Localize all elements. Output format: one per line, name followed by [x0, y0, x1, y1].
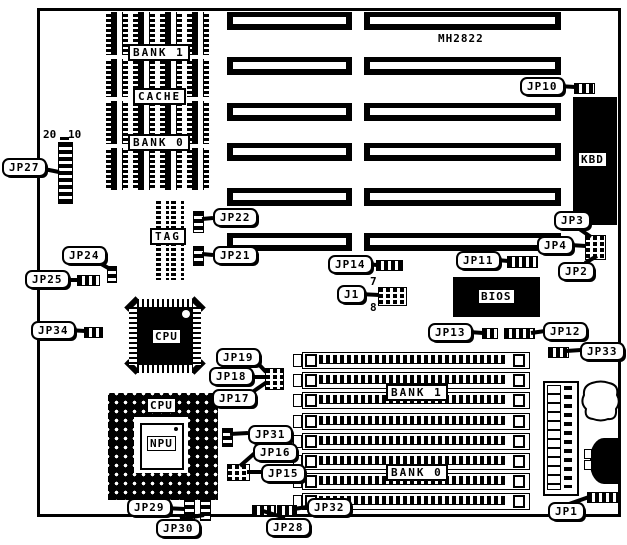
simm-contacts — [319, 375, 505, 384]
jp33-jumper — [548, 347, 569, 358]
dip-chip — [187, 148, 209, 190]
simm-latch — [305, 415, 317, 428]
qfp-pins-left — [129, 307, 137, 365]
callout-jp19: JP19 — [216, 348, 261, 367]
callout-jp25: JP25 — [25, 270, 70, 289]
simm-bank1-label: BANK 1 — [386, 384, 448, 401]
simm-latch — [513, 374, 525, 387]
j1-pin7-number: 7 — [370, 275, 377, 288]
jp21-jumper — [193, 246, 204, 266]
expansion-slot — [227, 143, 352, 161]
dip-chip — [187, 101, 209, 144]
simm-latch — [305, 475, 317, 488]
j1-pin8-number: 8 — [370, 301, 377, 314]
simm-latch — [513, 394, 525, 407]
simm-tab — [293, 415, 302, 428]
jp22-jumper — [193, 211, 204, 233]
simm-tab — [293, 374, 302, 387]
jp15-jp16-block — [227, 464, 250, 481]
jp14-jumper — [376, 260, 403, 271]
simm-contacts — [319, 355, 505, 364]
tag-label: TAG — [150, 228, 186, 245]
callout-j1: J1 — [337, 285, 366, 304]
simm-latch — [305, 455, 317, 468]
simm-socket — [302, 433, 530, 450]
simm-tab — [293, 394, 302, 407]
din-connector — [590, 438, 621, 484]
npu-label: NPU — [147, 436, 176, 451]
callout-jp13: JP13 — [428, 323, 473, 342]
callout-jp28: JP28 — [266, 518, 311, 537]
callout-jp33: JP33 — [580, 342, 625, 361]
simm-latch — [513, 354, 525, 367]
din-tab — [584, 449, 592, 459]
jp27-pin-notch — [60, 137, 69, 140]
jp27-pin10-number: 10 — [68, 128, 81, 141]
callout-jp32: JP32 — [307, 498, 352, 517]
dip-chip — [187, 59, 209, 97]
dip-chip — [187, 12, 209, 55]
expansion-slot — [364, 103, 561, 121]
jp27-pin20-number: 20 — [43, 128, 56, 141]
callout-jp12: JP12 — [543, 322, 588, 341]
jp1-jumper — [587, 492, 619, 503]
dip-chip — [133, 148, 155, 190]
expansion-slot — [364, 233, 561, 251]
simm-socket — [302, 352, 530, 369]
expansion-slot — [364, 188, 561, 206]
dip-chip — [106, 101, 128, 144]
power-connector-cells — [547, 385, 561, 490]
motherboard-diagram: MH2822 CPU CPU NPU BIOS KBD BANK 1 CACHE… — [0, 0, 627, 545]
simm-latch — [305, 435, 317, 448]
callout-jp16: JP16 — [253, 443, 298, 462]
qfp-pins-top — [137, 299, 193, 307]
dip-chip — [106, 148, 128, 190]
tag-chip — [156, 241, 169, 280]
expansion-slot — [227, 188, 352, 206]
dip-bank1-label: BANK 1 — [128, 44, 190, 61]
callout-jp24: JP24 — [62, 246, 107, 265]
simm-latch — [305, 354, 317, 367]
power-connector — [543, 381, 579, 496]
simm-latch — [305, 394, 317, 407]
callout-jp22: JP22 — [213, 208, 258, 227]
simm-tab — [293, 354, 302, 367]
jp30-jumper — [200, 497, 211, 521]
simm-latch — [513, 475, 525, 488]
callout-jp30: JP30 — [156, 519, 201, 538]
callout-jp10: JP10 — [520, 77, 565, 96]
jp2-jp3-jp4-block — [585, 235, 606, 260]
simm-bank0-label: BANK 0 — [386, 464, 448, 481]
board-model-text: MH2822 — [438, 32, 484, 45]
simm-contacts — [319, 416, 505, 425]
qfp-pins-right — [193, 307, 201, 365]
callout-jp34: JP34 — [31, 321, 76, 340]
callout-jp27: JP27 — [2, 158, 47, 177]
simm-socket — [302, 413, 530, 430]
jp32-jumper — [277, 505, 297, 516]
expansion-slot — [227, 57, 352, 75]
jp10-jumper — [574, 83, 595, 94]
expansion-slot — [227, 12, 352, 30]
simm-latch — [513, 455, 525, 468]
cpu-pga-label: CPU — [147, 398, 176, 413]
jp29-jumper — [184, 497, 195, 521]
simm-latch — [513, 435, 525, 448]
j1-header — [378, 287, 407, 306]
simm-latch — [305, 374, 317, 387]
expansion-slot — [364, 57, 561, 75]
jp34-jumper — [84, 327, 103, 338]
bios-label: BIOS — [478, 289, 515, 304]
simm-latch — [513, 495, 525, 508]
jp13-jumper — [482, 328, 498, 339]
callout-jp29: JP29 — [127, 498, 172, 517]
power-connector-pins — [564, 386, 572, 488]
tag-chip — [171, 241, 184, 280]
dip-chip — [106, 12, 128, 55]
callout-jp15: JP15 — [261, 464, 306, 483]
callout-jp14: JP14 — [328, 255, 373, 274]
jp17-jp18-jp19-block — [265, 368, 284, 390]
callout-jp31: JP31 — [248, 425, 293, 444]
qfp-pins-bottom — [137, 365, 193, 373]
jp31-jumper — [222, 428, 233, 447]
expansion-slot — [227, 103, 352, 121]
callout-jp2: JP2 — [558, 262, 595, 281]
din-tab — [584, 460, 592, 470]
cache-label: CACHE — [133, 88, 186, 105]
jp24-jumper — [107, 266, 117, 283]
callout-jp18: JP18 — [209, 367, 254, 386]
cpu-qfp-label: CPU — [152, 329, 181, 344]
simm-latch — [513, 415, 525, 428]
jp11-jumper — [507, 256, 538, 268]
callout-jp3: JP3 — [554, 211, 591, 230]
npu-pin1-dot — [174, 427, 178, 431]
dip-chip — [160, 148, 182, 190]
qfp-pin1-dot — [182, 310, 190, 318]
jp28-jumper — [252, 505, 276, 516]
callout-jp11: JP11 — [456, 251, 501, 270]
expansion-slot — [364, 12, 561, 30]
expansion-slot — [364, 143, 561, 161]
callout-jp21: JP21 — [213, 246, 258, 265]
jp27-header — [58, 142, 73, 204]
callout-jp1: JP1 — [548, 502, 585, 521]
simm-contacts — [319, 436, 505, 445]
kbd-label: KBD — [578, 152, 607, 167]
jp12-jumper — [504, 328, 535, 339]
dip-chip — [106, 59, 128, 97]
callout-jp17: JP17 — [212, 389, 257, 408]
dip-bank0-label: BANK 0 — [128, 134, 190, 151]
jp25-jumper — [77, 275, 100, 286]
callout-jp4: JP4 — [537, 236, 574, 255]
